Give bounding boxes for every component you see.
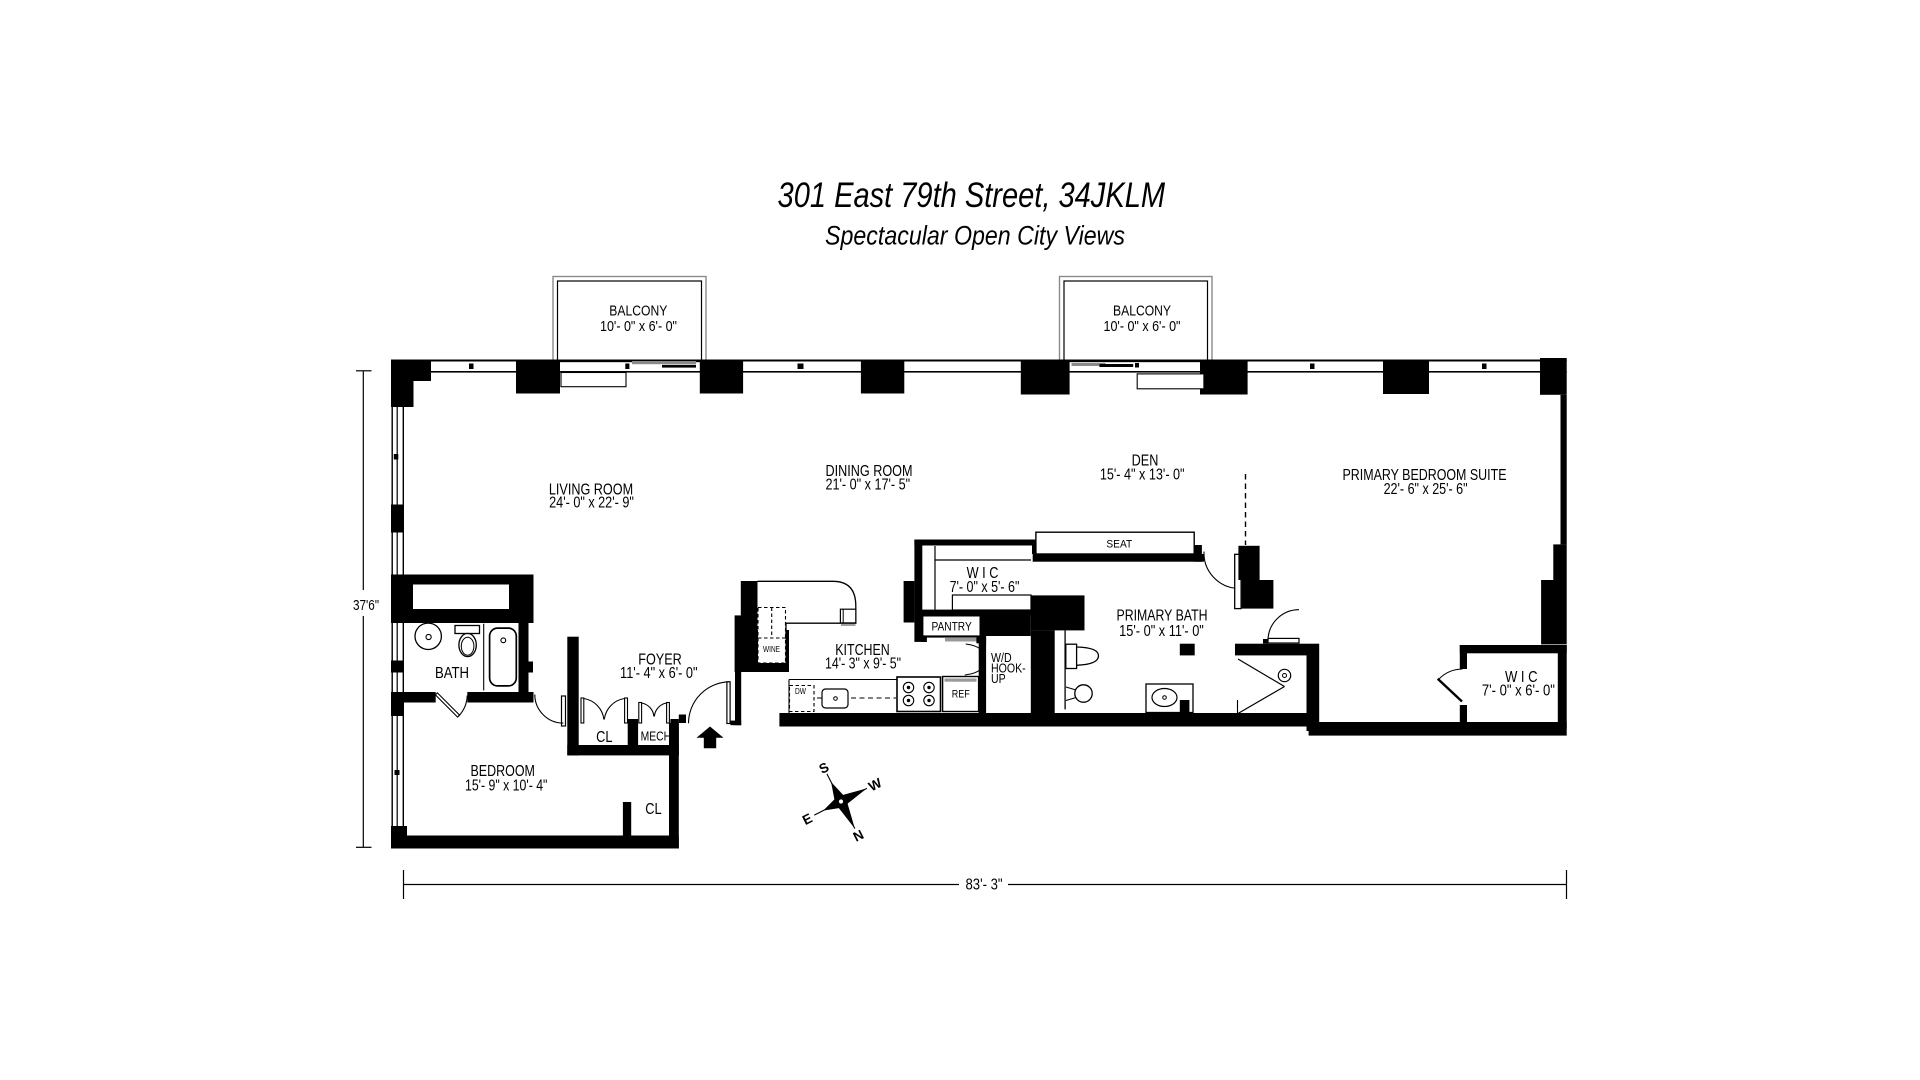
svg-text:301 East 79th Street, 34JKLM: 301 East 79th Street, 34JKLM xyxy=(778,176,1166,215)
svg-text:15'- 0" x 11'- 0": 15'- 0" x 11'- 0" xyxy=(1119,623,1204,640)
svg-text:REF: REF xyxy=(952,689,970,701)
svg-text:Spectacular Open City Views: Spectacular Open City Views xyxy=(825,221,1125,251)
svg-text:PANTRY: PANTRY xyxy=(931,620,971,634)
svg-text:11'- 4" x 6'- 0": 11'- 4" x 6'- 0" xyxy=(620,665,698,682)
svg-text:37'6": 37'6" xyxy=(353,598,379,614)
svg-text:14'- 3" x 9'- 5": 14'- 3" x 9'- 5" xyxy=(825,655,901,672)
svg-text:15'- 9" x 10'- 4": 15'- 9" x 10'- 4" xyxy=(465,777,547,794)
svg-text:CL: CL xyxy=(596,729,613,746)
svg-text:BATH: BATH xyxy=(435,665,469,682)
svg-text:CL: CL xyxy=(645,801,662,818)
svg-text:7'- 0" x 5'- 6": 7'- 0" x 5'- 6" xyxy=(950,579,1020,596)
svg-text:WINE: WINE xyxy=(763,645,780,654)
svg-text:MECH: MECH xyxy=(641,730,672,744)
svg-text:24'- 0" x 22'- 9": 24'- 0" x 22'- 9" xyxy=(549,495,634,512)
svg-text:7'- 0" x 6'- 0": 7'- 0" x 6'- 0" xyxy=(1482,683,1555,700)
svg-text:BALCONY: BALCONY xyxy=(609,303,667,319)
svg-text:BALCONY: BALCONY xyxy=(1113,303,1171,319)
svg-text:83'- 3": 83'- 3" xyxy=(966,877,1003,894)
svg-text:DW: DW xyxy=(795,687,806,696)
svg-text:UP: UP xyxy=(991,671,1006,686)
svg-text:10'- 0" x 6'- 0": 10'- 0" x 6'- 0" xyxy=(1104,318,1181,335)
svg-text:15'- 4" x 13'- 0": 15'- 4" x 13'- 0" xyxy=(1100,466,1185,483)
svg-text:22'- 6" x 25'- 6": 22'- 6" x 25'- 6" xyxy=(1384,481,1468,498)
svg-text:21'- 0" x 17'- 5": 21'- 0" x 17'- 5" xyxy=(825,477,910,494)
svg-text:10'- 0" x 6'- 0": 10'- 0" x 6'- 0" xyxy=(600,318,677,335)
svg-text:SEAT: SEAT xyxy=(1106,539,1132,551)
